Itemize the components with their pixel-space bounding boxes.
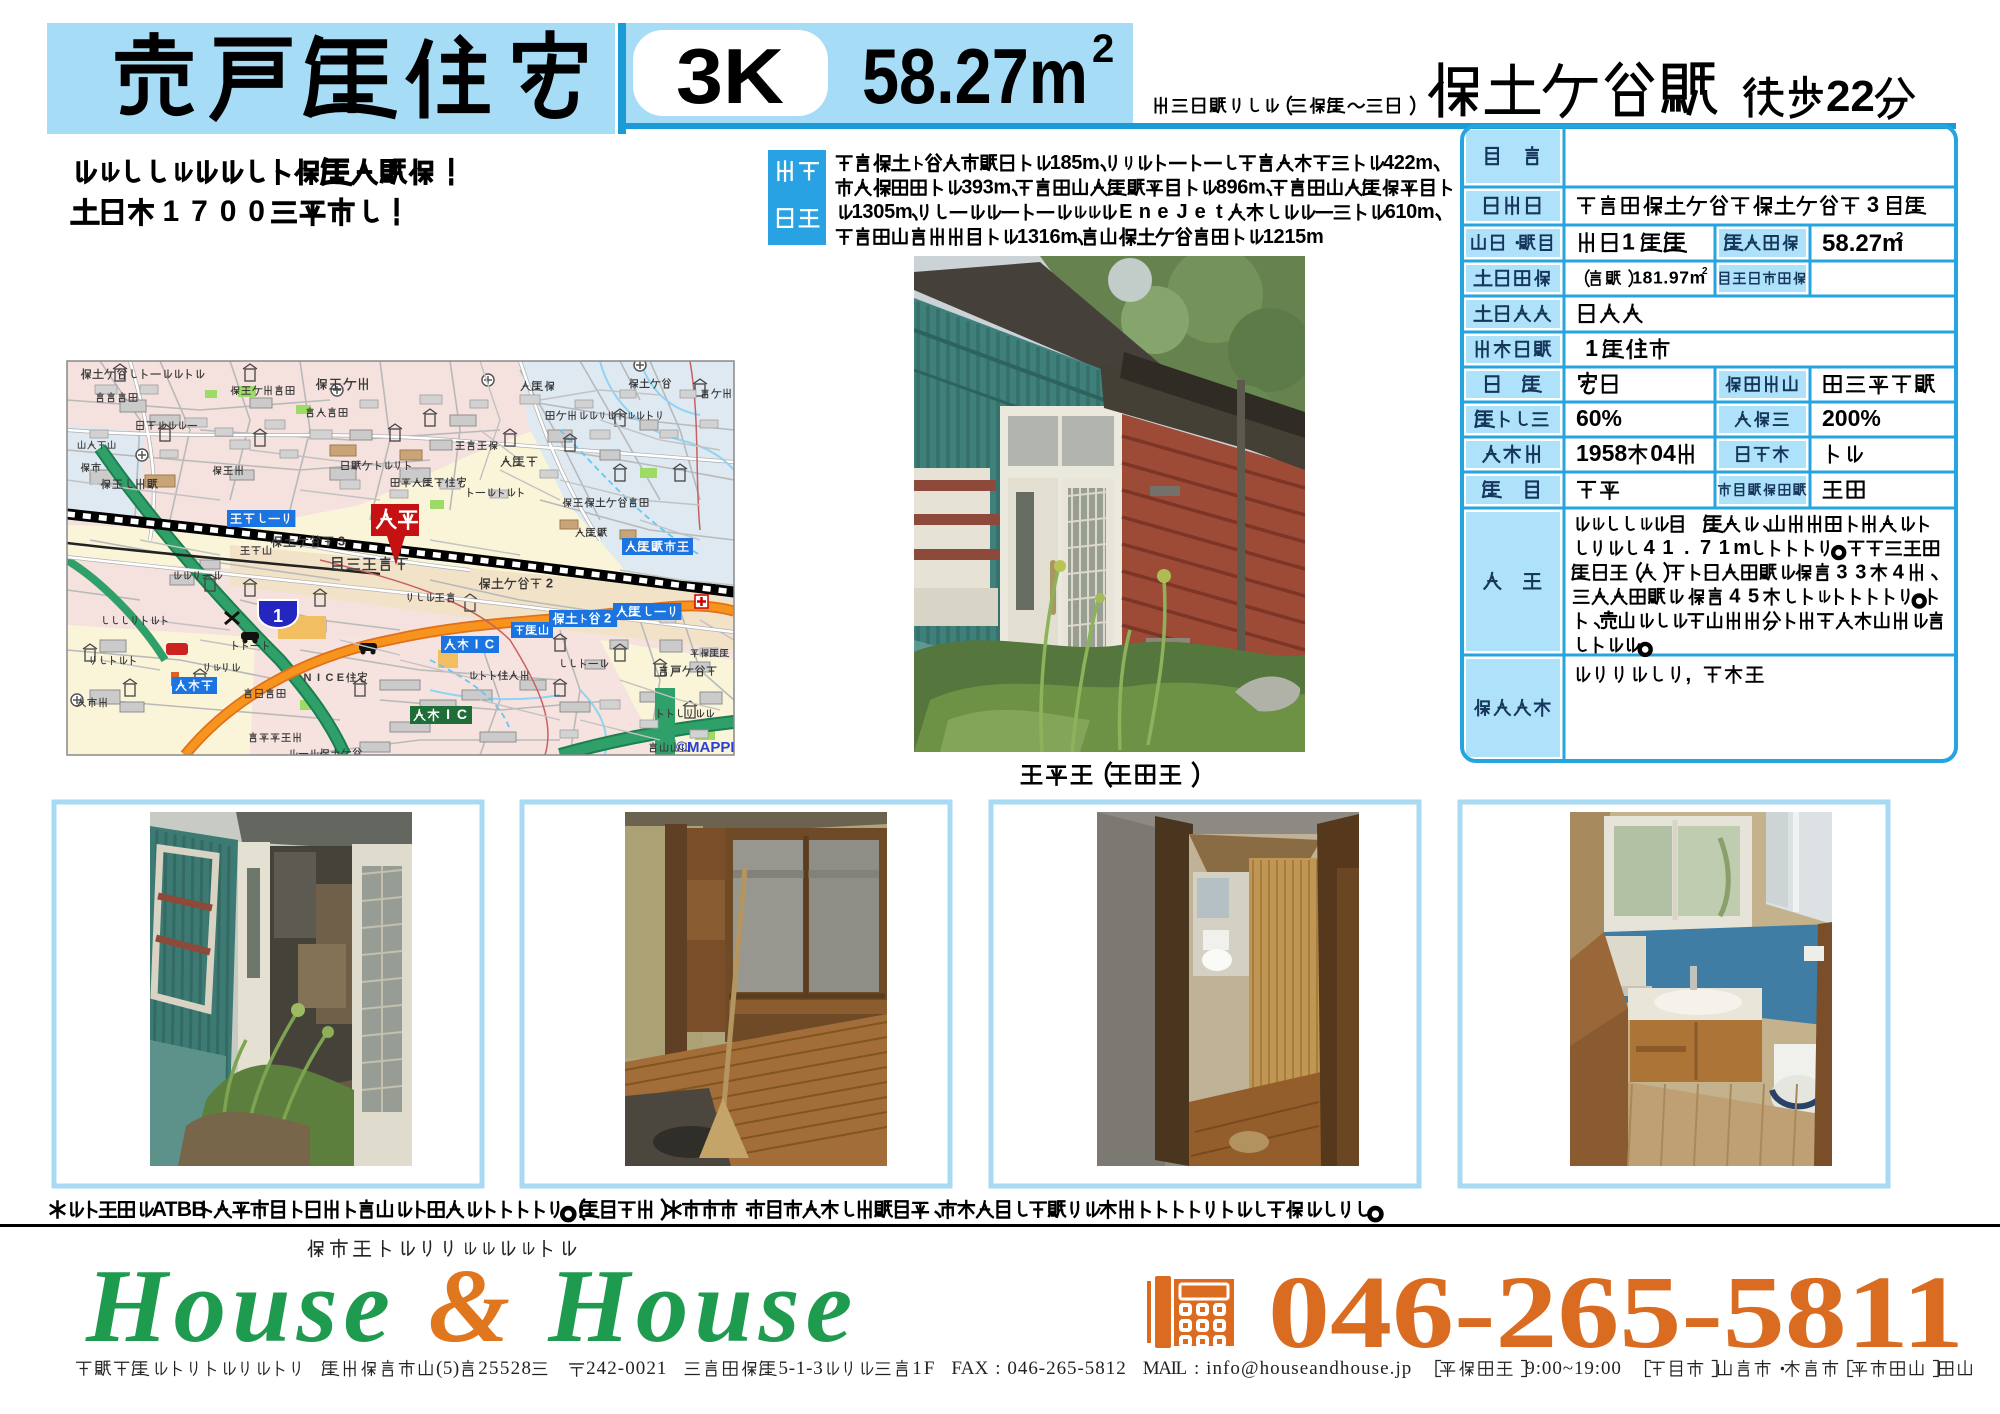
svg-text:C: C (485, 636, 495, 651)
svg-text:1F: 1F (912, 1358, 934, 1379)
svg-text:e: e (1195, 201, 1206, 223)
svg-text:1: 1 (1585, 335, 1598, 361)
svg-text:22: 22 (1826, 72, 1875, 121)
svg-text:242-0021: 242-0021 (586, 1358, 666, 1379)
svg-text:25528: 25528 (478, 1358, 531, 1379)
svg-text:04: 04 (1650, 440, 1676, 466)
svg-text:n: n (1139, 201, 1151, 223)
svg-text:I: I (317, 672, 320, 684)
svg-text:2: 2 (546, 575, 553, 590)
svg-text:0: 0 (248, 195, 265, 228)
svg-text:4: 4 (1729, 586, 1741, 608)
svg-text:I: I (475, 636, 479, 651)
svg-text:1: 1 (1719, 537, 1730, 559)
svg-text:,: , (1685, 663, 1691, 686)
svg-text:C: C (457, 706, 467, 722)
svg-text:C: C (326, 672, 334, 684)
svg-text:5: 5 (1748, 586, 1759, 608)
svg-text:I: I (446, 706, 450, 722)
svg-text:House & House: House & House (85, 1247, 858, 1364)
svg-text:2: 2 (1092, 27, 1114, 71)
svg-text:4: 4 (1644, 537, 1656, 559)
svg-text:896m: 896m (1216, 177, 1266, 199)
svg-text:046-265-5811: 046-265-5811 (1268, 1255, 1964, 1370)
svg-text:2: 2 (1896, 229, 1903, 244)
svg-text:FAX: FAX (951, 1358, 988, 1379)
svg-text:58.27m: 58.27m (1822, 230, 1903, 257)
svg-text:1: 1 (1662, 537, 1673, 559)
svg-text:1: 1 (1622, 228, 1635, 254)
svg-text:3: 3 (338, 533, 345, 548)
svg-text:1: 1 (163, 195, 180, 228)
svg-text:(5): (5) (436, 1358, 459, 1379)
svg-text:N: N (304, 672, 312, 684)
svg-text:7: 7 (191, 195, 208, 228)
svg-text:5-1-3: 5-1-3 (779, 1358, 823, 1379)
svg-text:046-265-5812: 046-265-5812 (1007, 1358, 1125, 1379)
svg-text:info@houseandhouse.jp: info@houseandhouse.jp (1206, 1358, 1411, 1379)
svg-text:2: 2 (604, 610, 611, 625)
svg-text:4: 4 (1893, 561, 1905, 583)
svg-text:1215m: 1215m (1263, 226, 1324, 248)
svg-text:1316m: 1316m (1017, 226, 1078, 248)
svg-text:3: 3 (1836, 561, 1847, 583)
svg-text:181.97m: 181.97m (1632, 268, 1705, 288)
svg-text:1: 1 (273, 606, 283, 626)
svg-text:9:00~19:00: 9:00~19:00 (1525, 1358, 1621, 1379)
svg-text:1305m: 1305m (852, 201, 913, 223)
svg-text:0: 0 (220, 195, 237, 228)
svg-text:58.27m: 58.27m (862, 32, 1088, 120)
svg-text:t: t (1216, 201, 1223, 223)
svg-text:.: . (1684, 537, 1690, 559)
svg-text:422m: 422m (1383, 152, 1433, 174)
svg-text:J: J (1177, 201, 1188, 223)
svg-text:3K: 3K (676, 32, 784, 120)
svg-text:m: m (1733, 537, 1751, 559)
svg-text:3: 3 (1855, 561, 1866, 583)
svg-text:©MAPPLE: ©MAPPLE (676, 739, 750, 756)
svg-text:e: e (1157, 201, 1168, 223)
svg-text::: : (995, 1358, 1000, 1379)
svg-text:2: 2 (1702, 266, 1708, 277)
svg-text:3: 3 (1867, 192, 1879, 217)
svg-text:185m: 185m (1050, 152, 1100, 174)
svg-text:MAIL: MAIL (1143, 1358, 1187, 1379)
svg-text:610m: 610m (1385, 201, 1435, 223)
svg-text:393m: 393m (961, 177, 1011, 199)
svg-text:E: E (337, 672, 344, 684)
svg-text:1958: 1958 (1576, 440, 1627, 466)
svg-text:E: E (1119, 201, 1132, 223)
svg-text:7: 7 (1700, 537, 1711, 559)
svg-text:ATBB: ATBB (152, 1198, 207, 1221)
svg-text::: : (1194, 1358, 1199, 1379)
svg-text:60%: 60% (1576, 405, 1622, 431)
svg-text:200%: 200% (1822, 405, 1881, 431)
